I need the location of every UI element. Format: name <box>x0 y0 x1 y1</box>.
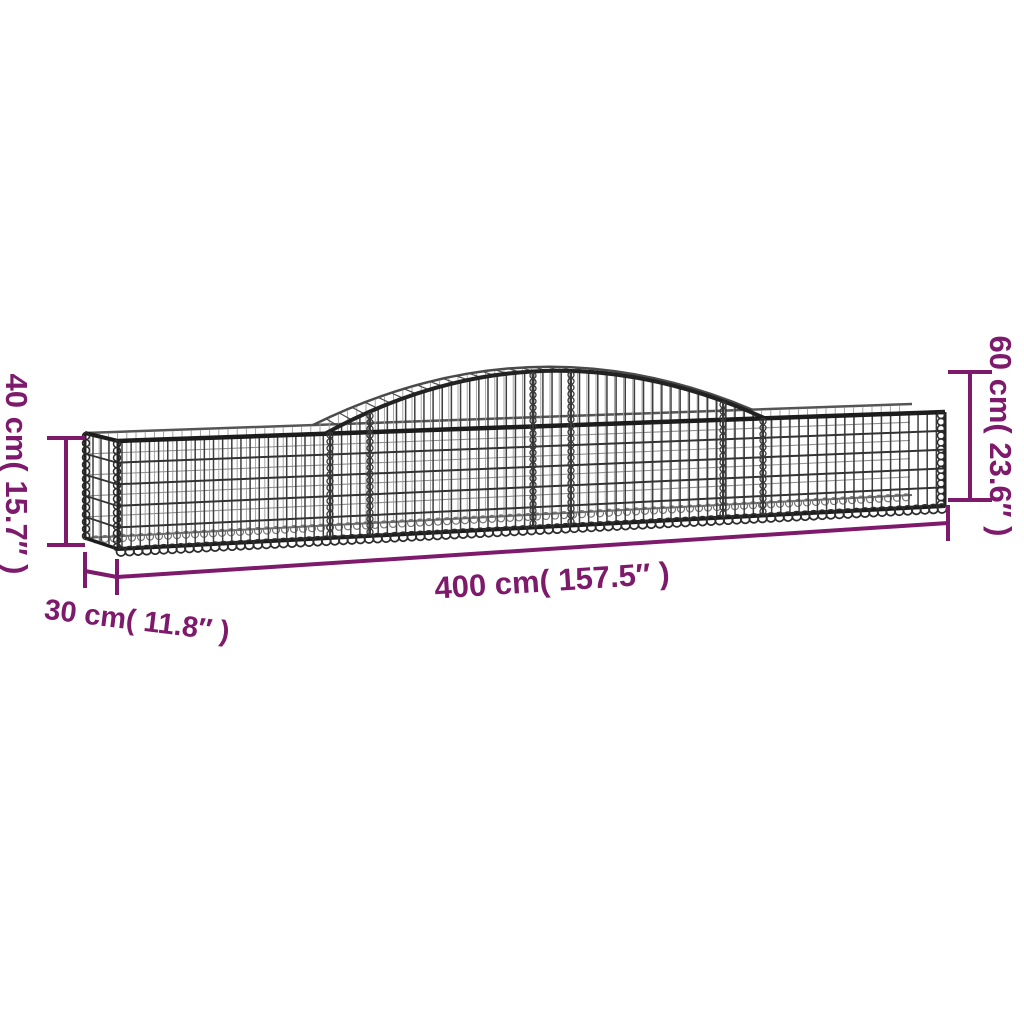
diagram-canvas: 40 cm( 15.7″ ) 60 cm( 23.6″ ) 400 cm( 15… <box>0 0 1024 1024</box>
end-height-dimension <box>47 438 85 545</box>
basket-back-panel <box>85 367 912 543</box>
depth-dimension <box>85 552 117 588</box>
gabion-basket-illustration <box>0 0 1024 1024</box>
basket-left-end <box>83 433 121 551</box>
end-height-dimension-label: 40 cm( 15.7″ ) <box>0 344 34 604</box>
middle-height-dimension-label: 60 cm( 23.6″ ) <box>982 306 1018 566</box>
